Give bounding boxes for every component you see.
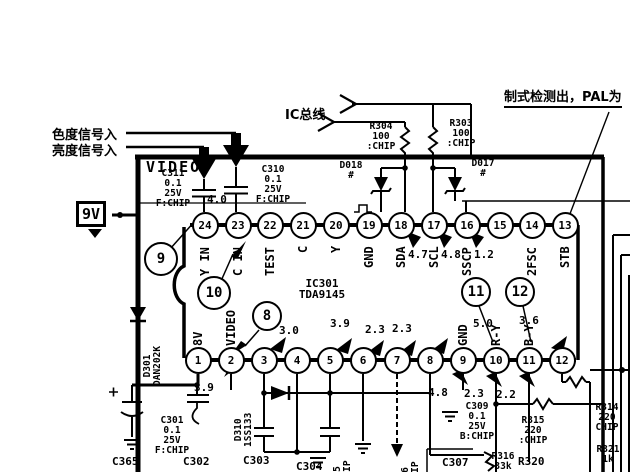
ic-pin-4: 4 bbox=[284, 347, 311, 374]
label-c304: C304 bbox=[296, 461, 323, 472]
pin-9-label: GND bbox=[457, 324, 469, 346]
label-r315: R315 220 :CHIP bbox=[512, 416, 554, 446]
voltage-pin7: 2.3 bbox=[392, 323, 412, 334]
pin-1-label: 8V bbox=[192, 332, 204, 346]
ic-part: TDA9145 bbox=[299, 288, 345, 301]
ic-pin-14: 14 bbox=[519, 212, 546, 239]
label-c302: C302 bbox=[183, 456, 210, 467]
pin-21-label: C bbox=[297, 246, 309, 253]
ic-pin-11: 11 bbox=[516, 347, 543, 374]
bus-to-pin-wires bbox=[402, 157, 436, 212]
pin-14-label: 2FSC bbox=[526, 247, 538, 276]
rail-9v-wire bbox=[112, 212, 138, 218]
voltage-rail: 3.9 bbox=[194, 382, 214, 393]
voltage-below-pin10: 2.3 bbox=[464, 388, 484, 399]
pulse-symbol bbox=[354, 205, 372, 212]
ic-pin-9: 9 bbox=[450, 347, 477, 374]
label-c365: C365 bbox=[112, 456, 139, 467]
label-d017: D017 # bbox=[464, 159, 502, 179]
ic-pin-1: 1 bbox=[185, 347, 212, 374]
diode-d018-symbol bbox=[371, 168, 405, 212]
pin-10-label: R-Y bbox=[490, 324, 502, 346]
label-d018: D018 # bbox=[332, 161, 370, 181]
ic-pin-16: 16 bbox=[454, 212, 481, 239]
voltage-below-pin11: 2.2 bbox=[496, 389, 516, 400]
pin-16-voltage: 1.2 bbox=[474, 249, 494, 260]
label-c309: C309 0.1 25V B:CHIP bbox=[450, 402, 504, 442]
voltage-pin4: 3.0 bbox=[279, 325, 299, 336]
schematic-canvas: 色度信号入 亮度信号入 IC总线 制式检测出，PAL为 9V VIDEO IC3… bbox=[0, 0, 630, 472]
diode-d310-symbol bbox=[271, 386, 289, 400]
chroma-input-arrow bbox=[223, 133, 249, 167]
pin-13-label: STB bbox=[559, 246, 571, 268]
label-d301: D301 DAN202K bbox=[143, 346, 163, 386]
voltage-pin5: 3.9 bbox=[330, 318, 350, 329]
pin-2-label: VIDEO bbox=[225, 310, 237, 346]
label-r316: R316 33k bbox=[486, 452, 520, 472]
ic-pin-23: 23 bbox=[225, 212, 252, 239]
capacitor-c303-symbol bbox=[254, 428, 274, 436]
ic-pin-6: 6 bbox=[350, 347, 377, 374]
label-d310: D310 1SS133 bbox=[234, 413, 254, 447]
pin-18-label: SDA bbox=[395, 246, 407, 268]
pin-19-label: GND bbox=[363, 246, 375, 268]
pin-17-label: SCL bbox=[428, 246, 440, 268]
ic-pin-5: 5 bbox=[317, 347, 344, 374]
ic-pin-8: 8 bbox=[417, 347, 444, 374]
ic-pin-15: 15 bbox=[487, 212, 514, 239]
ic-pin-22: 22 bbox=[257, 212, 284, 239]
label-c301: C301 0.1 25V F:CHIP bbox=[146, 416, 198, 456]
luma-in-label: 亮度信号入 bbox=[52, 140, 117, 159]
pin-24-label: Y IN bbox=[199, 247, 211, 276]
label-c305: 305 :CHIP bbox=[333, 460, 353, 472]
pin-18-voltage: 4.7 bbox=[408, 249, 428, 260]
resistor-r303-symbol bbox=[429, 127, 437, 157]
standard-detect-label: 制式检测出，PAL为 bbox=[504, 86, 622, 108]
ic-bus-label: IC总线 bbox=[285, 104, 325, 123]
ic-pin-13: 13 bbox=[552, 212, 579, 239]
voltage-pin6: 2.3 bbox=[365, 324, 385, 335]
callout-11: 11 bbox=[461, 277, 491, 307]
diode-d017-symbol bbox=[433, 168, 465, 201]
capacitor-c304-symbol bbox=[320, 428, 340, 436]
rail-9v-badge: 9V bbox=[76, 201, 106, 227]
9v-box-arrow bbox=[88, 229, 102, 238]
capacitor-c310-symbol bbox=[224, 167, 248, 212]
label-c306: 306 :CHIP bbox=[401, 461, 421, 472]
callout-12: 12 bbox=[505, 277, 535, 307]
label-r314: R314 220 CHIP bbox=[586, 403, 628, 433]
ic-pin-20: 20 bbox=[323, 212, 350, 239]
pin-22-label: TEST bbox=[264, 247, 276, 276]
pin7-down-arrow bbox=[391, 444, 403, 457]
pin-20-label: Y bbox=[330, 246, 342, 253]
ic-pin-12: 12 bbox=[549, 347, 576, 374]
label-c303: C303 bbox=[243, 455, 270, 466]
pin-17-voltage: 4.8 bbox=[441, 249, 461, 260]
ic-pin-7: 7 bbox=[384, 347, 411, 374]
pin-23-label: C IN bbox=[232, 247, 244, 276]
ic-pin-21: 21 bbox=[290, 212, 317, 239]
callout-9: 9 bbox=[144, 242, 178, 276]
ic-designator: IC301 TDA9145 bbox=[290, 278, 354, 300]
ic-pin-3: 3 bbox=[251, 347, 278, 374]
ic-pin-2: 2 bbox=[218, 347, 245, 374]
callout-8: 8 bbox=[252, 301, 282, 331]
ic-pin-10: 10 bbox=[483, 347, 510, 374]
signal-input-wires bbox=[126, 133, 236, 147]
pin-11-label: B-Y bbox=[523, 324, 535, 346]
label-r303: R303 100 :CHIP bbox=[438, 119, 484, 149]
ic-pin-24: 24 bbox=[192, 212, 219, 239]
voltage-below-pin9: 4.8 bbox=[428, 387, 448, 398]
label-c311: C311 0.1 25V F:CHIP bbox=[150, 169, 196, 209]
pin-16-label: SSCP bbox=[461, 247, 473, 276]
label-r321: R321 1k bbox=[589, 445, 627, 465]
ic-pin-17: 17 bbox=[421, 212, 448, 239]
ic-pin-19: 19 bbox=[356, 212, 383, 239]
label-r304: R304 100 :CHIP bbox=[358, 122, 404, 152]
label-c307: C307 bbox=[442, 457, 469, 468]
label-r320: R320 bbox=[518, 456, 545, 467]
ic-pin-18: 18 bbox=[388, 212, 415, 239]
voltage-pin23-ac: 4.0 bbox=[207, 194, 227, 205]
callout-10: 10 bbox=[197, 276, 231, 310]
label-c310: C310 0.1 25V F:CHIP bbox=[250, 165, 296, 205]
diode-d301-symbol bbox=[130, 307, 146, 321]
